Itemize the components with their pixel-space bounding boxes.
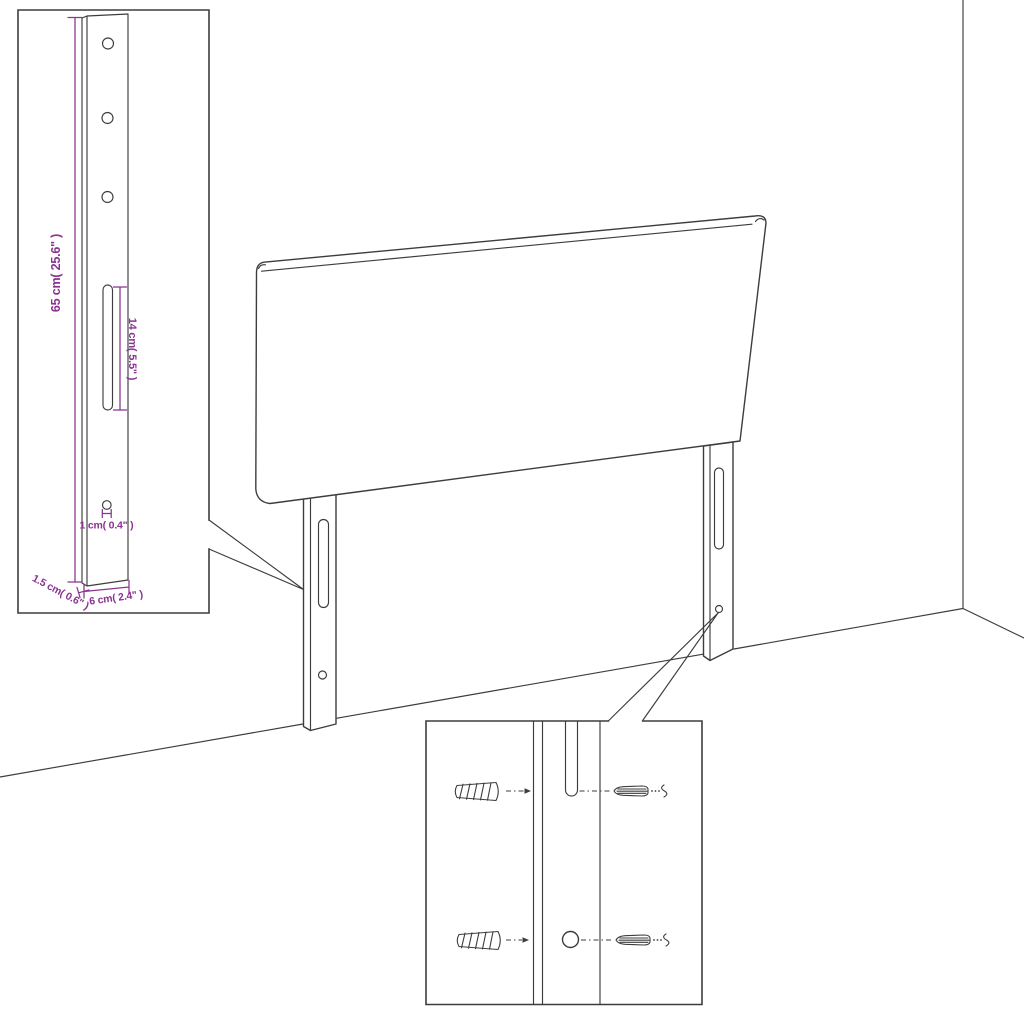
left-leg-outline [304, 494, 337, 731]
wall-plug-icon [455, 783, 498, 801]
dimension-label-slot: 14 cm( 5.5" ) [126, 318, 138, 381]
inset-bottom-callout-lines [608, 613, 718, 721]
dim-line-14cm [114, 287, 127, 410]
dimension-label-height: 65 cm( 25.6" ) [49, 234, 63, 312]
inset-left: 65 cm( 25.6" ) 14 cm( 5.5" ) 1 cm( 0.4" … [18, 10, 209, 613]
bracket-small-hole [103, 501, 112, 510]
inset-bottom [426, 721, 702, 1005]
headboard-dimension-diagram: 65 cm( 25.6" ) 14 cm( 5.5" ) 1 cm( 0.4" … [0, 0, 1024, 1024]
bracket-hole-1 [103, 38, 114, 49]
headboard-outline [256, 216, 766, 504]
wall-plug-icon [457, 932, 500, 950]
inset-bottom-frame [426, 721, 702, 1005]
headboard-panel [256, 216, 766, 504]
diagram-canvas: 65 cm( 25.6" ) 14 cm( 5.5" ) 1 cm( 0.4" … [0, 0, 1024, 1024]
screw-icon [614, 785, 667, 797]
dimension-label-hole: 1 cm( 0.4" ) [80, 520, 134, 532]
dimension-lines [68, 18, 129, 599]
inset-leg-slot [566, 722, 578, 797]
inset-left-callout-lines [209, 520, 304, 590]
bracket-slot [103, 285, 113, 410]
screw-icon [616, 934, 669, 946]
left-leg [304, 494, 337, 731]
bracket-hole-3 [102, 192, 113, 203]
leader-arrow-upper [525, 788, 532, 794]
inset-leg-hole [563, 932, 579, 948]
dimension-label-width: 6 cm( 2.4" ) [89, 588, 144, 607]
bracket-hole-2 [102, 113, 113, 124]
bracket-drawing [82, 14, 128, 586]
dim-bracket-1cm [102, 510, 111, 518]
dim-line-65cm [68, 18, 82, 583]
leader-arrow-lower [523, 937, 530, 943]
bracket-outline [82, 14, 128, 586]
inset-leg-strip [534, 721, 601, 1005]
floor-line [0, 609, 1024, 778]
